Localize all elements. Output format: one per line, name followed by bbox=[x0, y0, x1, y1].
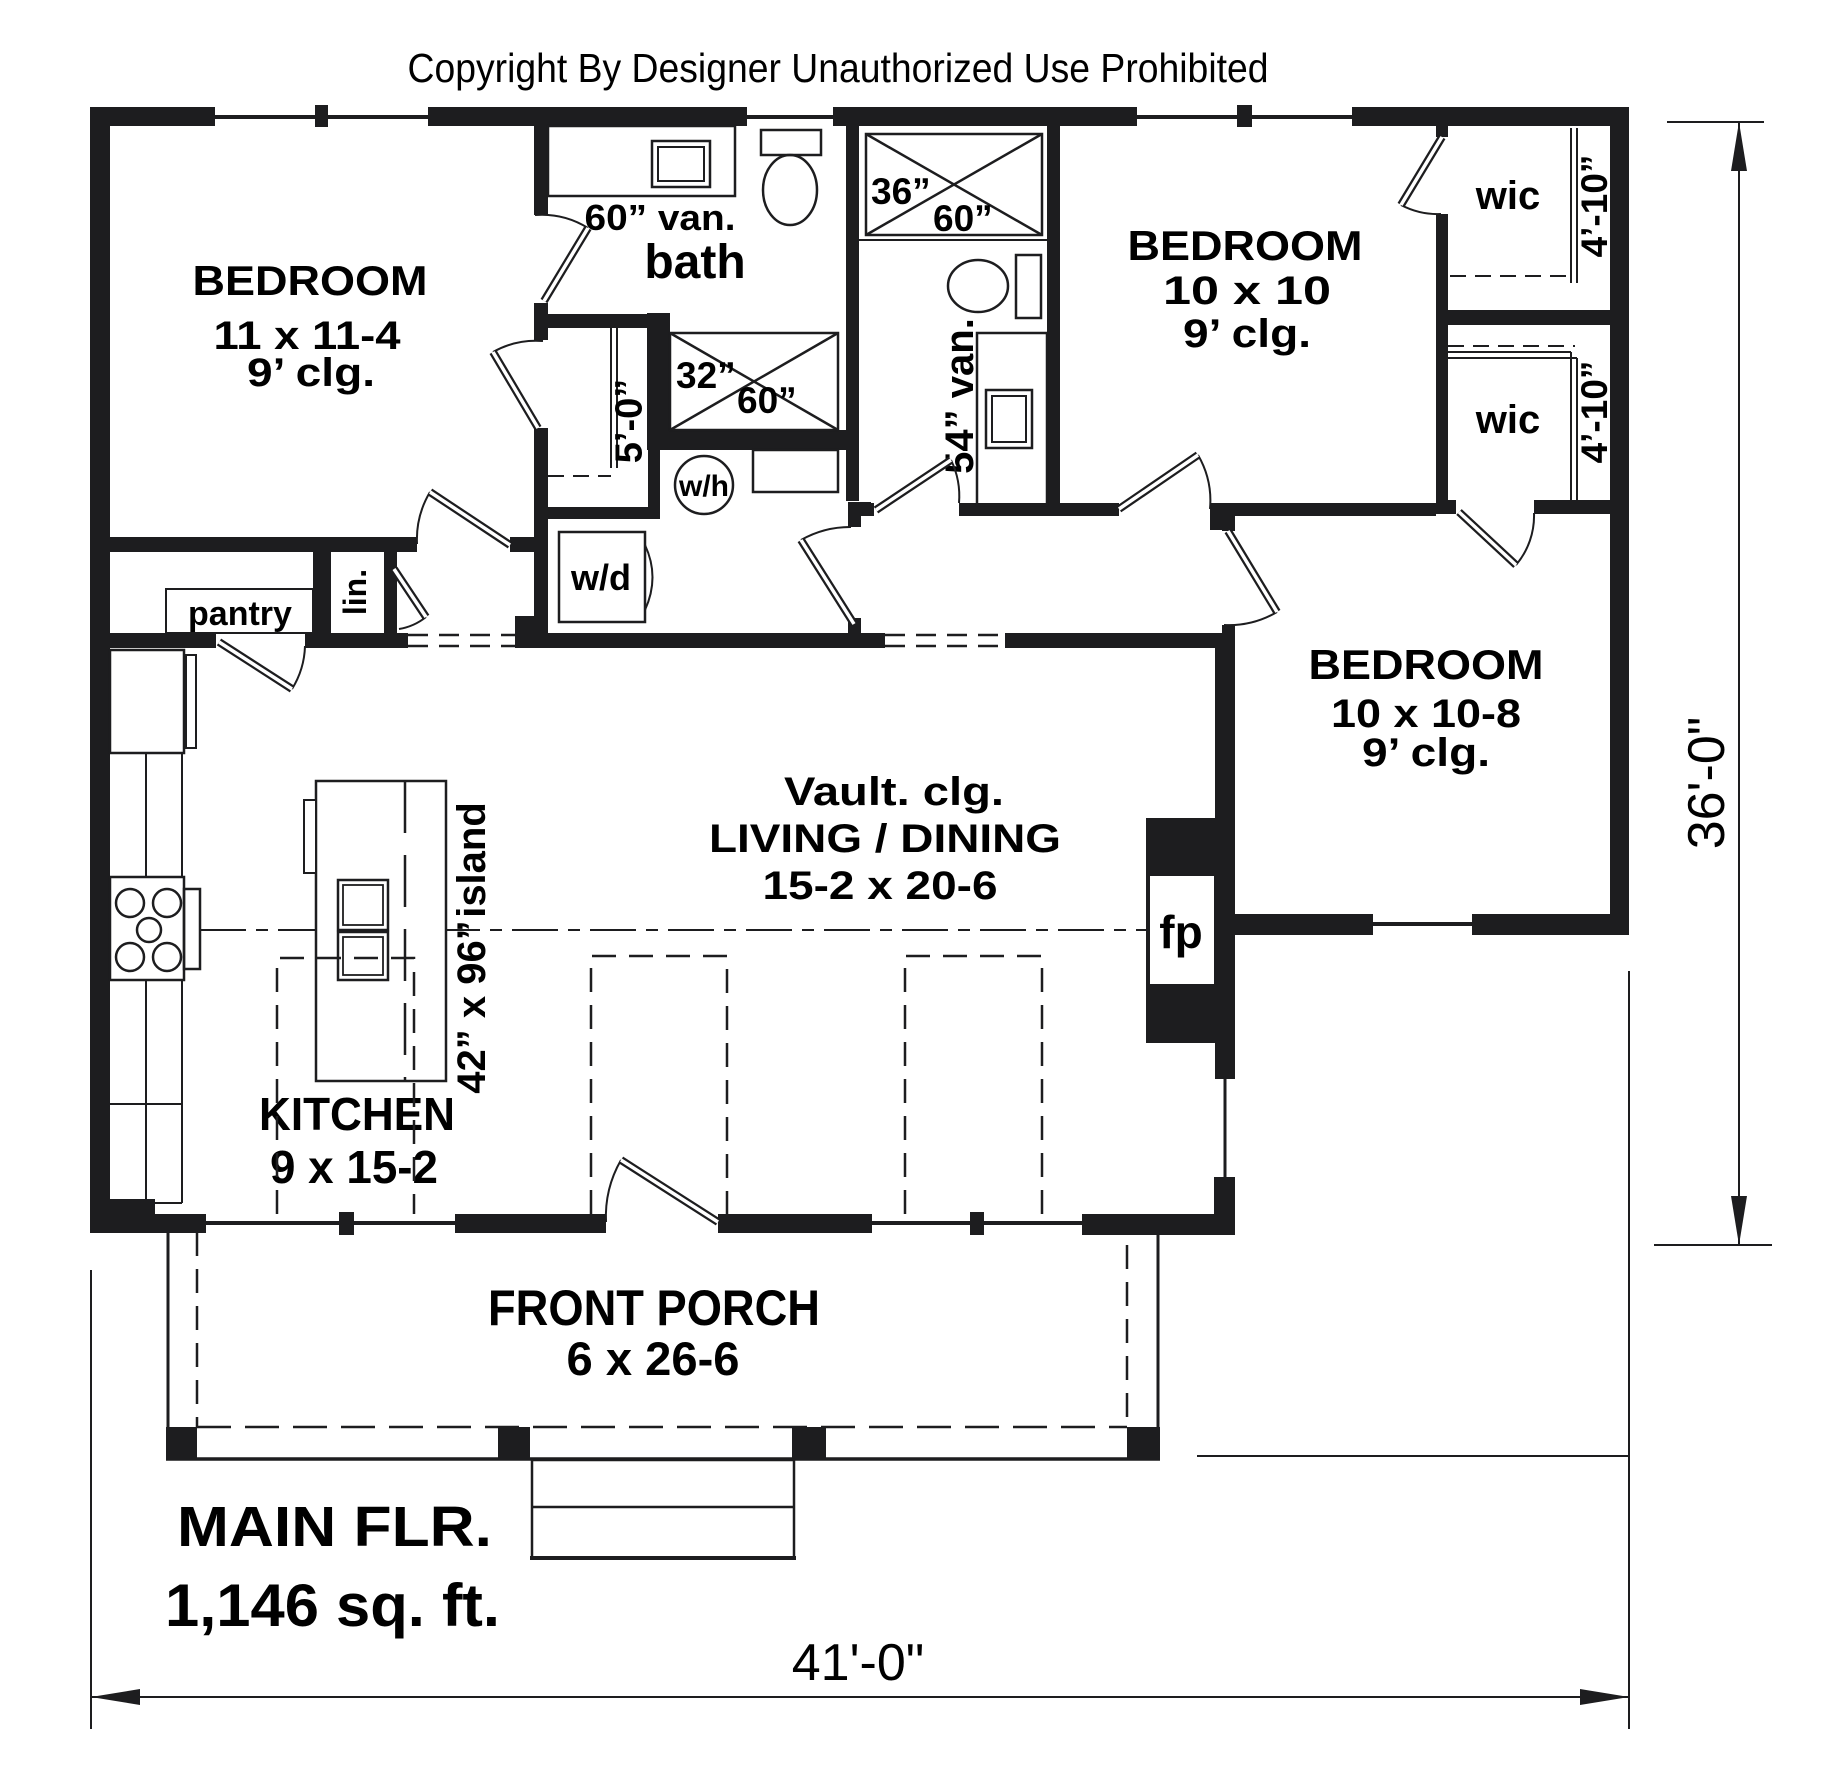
svg-text:bath: bath bbox=[644, 236, 745, 289]
svg-text:BEDROOM: BEDROOM bbox=[193, 257, 428, 304]
svg-text:32”: 32” bbox=[676, 355, 736, 396]
svg-text:6 x 26-6: 6 x 26-6 bbox=[567, 1332, 740, 1385]
svg-text:60”: 60” bbox=[737, 380, 797, 421]
svg-text:BEDROOM: BEDROOM bbox=[1309, 641, 1544, 688]
svg-text:9’ clg.: 9’ clg. bbox=[1362, 731, 1490, 775]
svg-text:60”: 60” bbox=[933, 198, 993, 239]
svg-text:9’ clg.: 9’ clg. bbox=[1183, 312, 1311, 356]
svg-text:10 x 10-8: 10 x 10-8 bbox=[1331, 692, 1521, 736]
svg-text:LIVING / DINING: LIVING / DINING bbox=[709, 817, 1061, 861]
svg-text:9’ clg.: 9’ clg. bbox=[247, 351, 375, 395]
svg-text:4’-10”: 4’-10” bbox=[1574, 361, 1615, 464]
svg-text:54” van.: 54” van. bbox=[938, 318, 982, 474]
svg-text:15-2 x 20-6: 15-2 x 20-6 bbox=[763, 864, 998, 908]
svg-text:5’-0”: 5’-0” bbox=[608, 379, 650, 463]
svg-text:1,146 sq. ft.: 1,146 sq. ft. bbox=[165, 1572, 500, 1639]
svg-text:36'-0": 36'-0" bbox=[1678, 717, 1736, 849]
svg-text:KITCHEN: KITCHEN bbox=[259, 1088, 455, 1140]
svg-text:w/h: w/h bbox=[678, 470, 729, 503]
svg-text:41'-0": 41'-0" bbox=[792, 1634, 924, 1692]
svg-text:MAIN FLR.: MAIN FLR. bbox=[177, 1495, 492, 1559]
svg-text:60” van.: 60” van. bbox=[585, 197, 736, 238]
svg-text:36”: 36” bbox=[871, 171, 931, 212]
svg-text:pantry: pantry bbox=[188, 595, 292, 633]
svg-text:wic: wic bbox=[1475, 398, 1540, 442]
svg-text:lin.: lin. bbox=[337, 569, 373, 615]
svg-text:fp: fp bbox=[1159, 906, 1202, 958]
svg-text:Vault. clg.: Vault. clg. bbox=[784, 770, 1004, 814]
svg-text:FRONT PORCH: FRONT PORCH bbox=[488, 1280, 820, 1336]
svg-text:island: island bbox=[450, 802, 494, 918]
svg-text:wic: wic bbox=[1475, 174, 1540, 218]
svg-text:10 x 10: 10 x 10 bbox=[1163, 269, 1331, 313]
svg-text:42” x 96”: 42” x 96” bbox=[450, 920, 494, 1093]
svg-text:w/d: w/d bbox=[570, 557, 631, 598]
svg-text:Copyright By Designer Unauthor: Copyright By Designer Unauthorized Use P… bbox=[408, 45, 1269, 91]
svg-text:BEDROOM: BEDROOM bbox=[1128, 222, 1363, 269]
svg-text:4’-10”: 4’-10” bbox=[1574, 155, 1615, 258]
